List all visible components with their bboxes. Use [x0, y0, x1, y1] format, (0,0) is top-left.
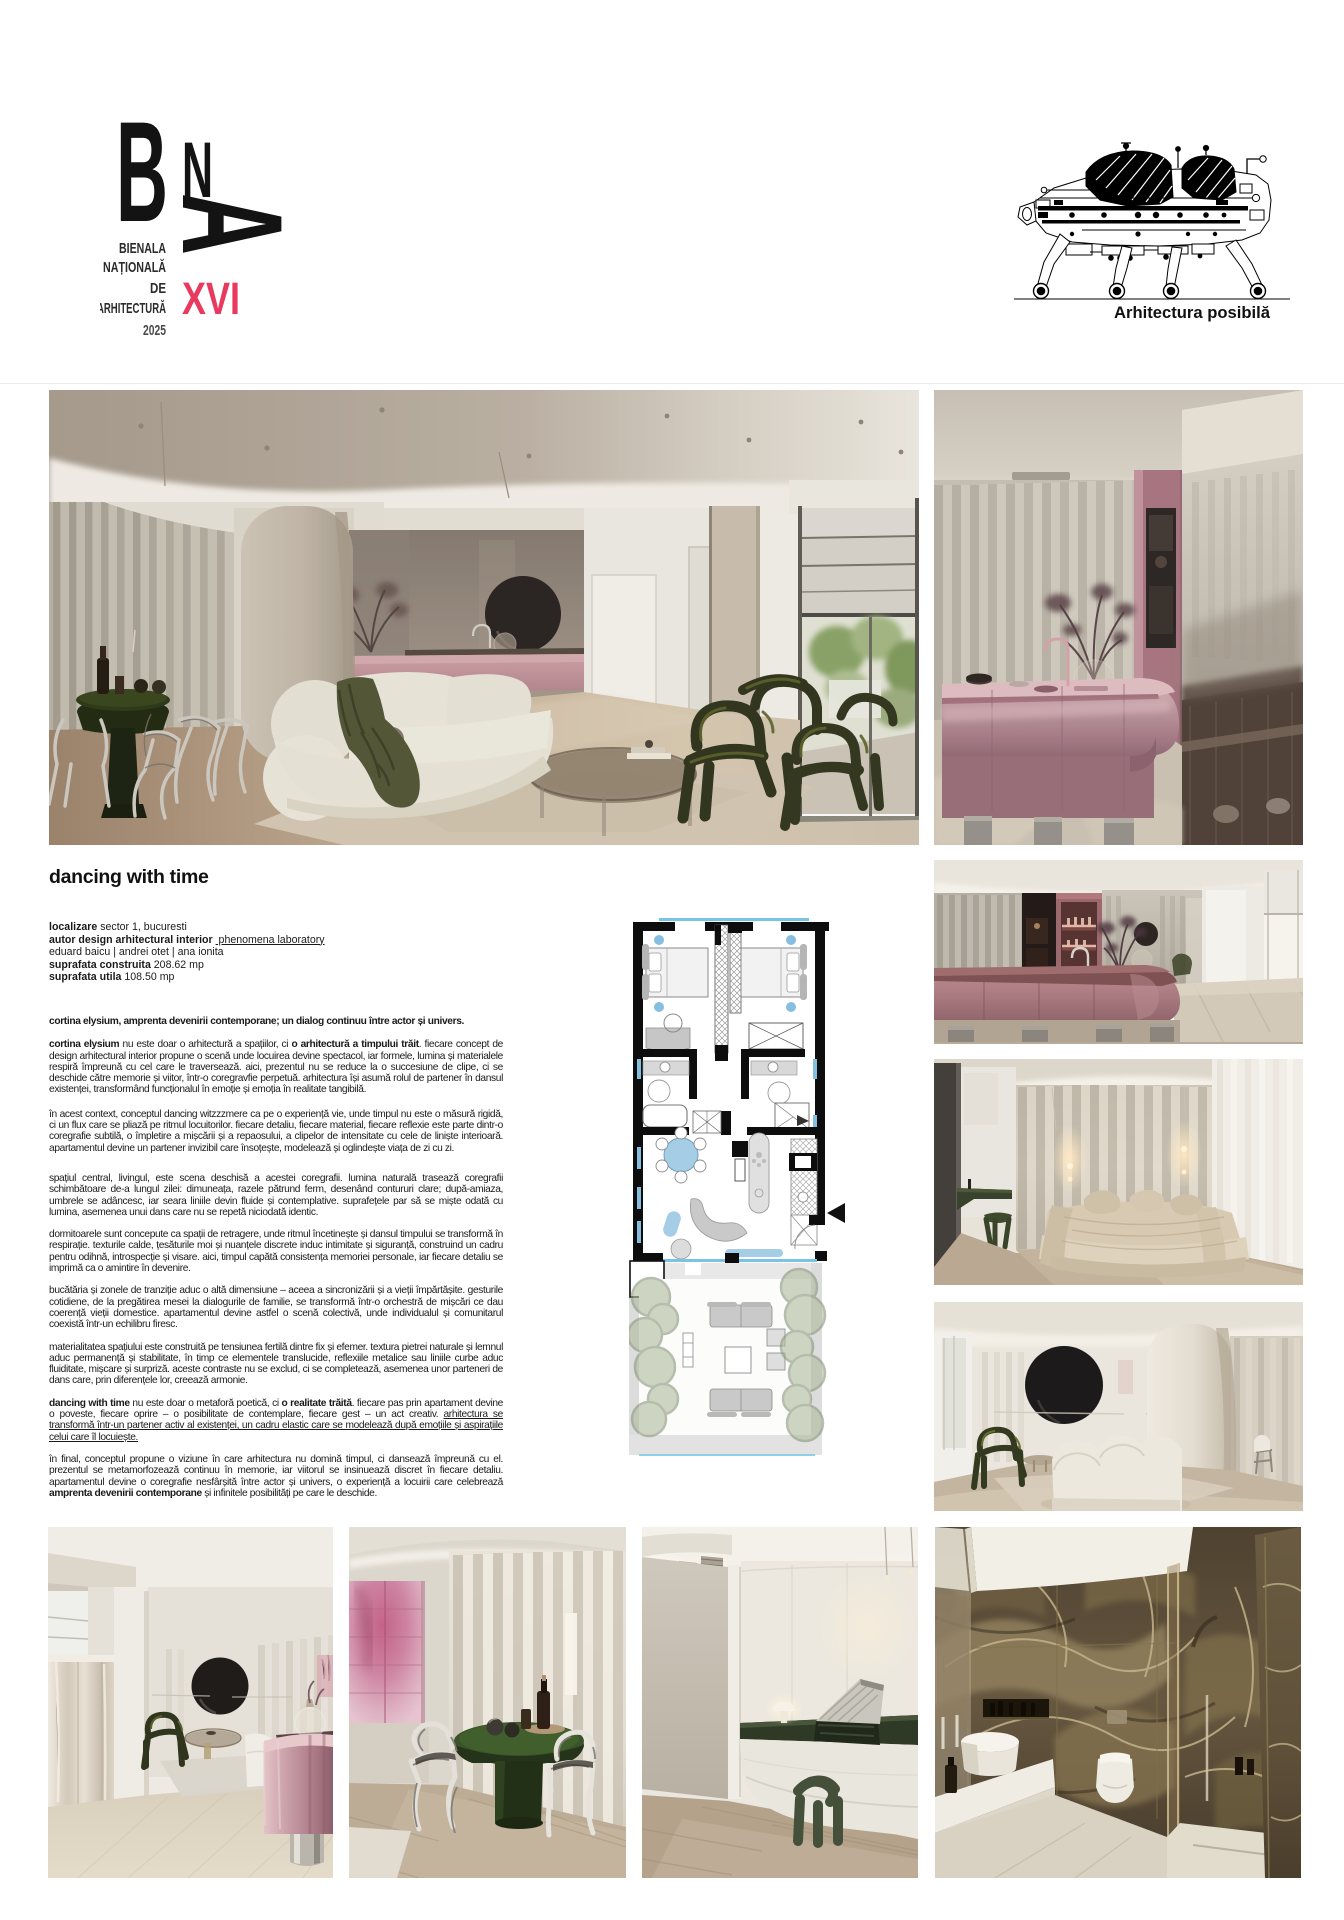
svg-text:DE: DE	[150, 281, 166, 297]
svg-text:2025: 2025	[143, 323, 166, 339]
svg-text:BIENALA: BIENALA	[119, 241, 166, 257]
svg-text:XVI: XVI	[182, 273, 240, 324]
svg-text:A: A	[152, 193, 311, 255]
svg-text:Arhitectura posibilă: Arhitectura posibilă	[1114, 304, 1271, 322]
svg-text:ARHITECTURĂ: ARHITECTURĂ	[100, 300, 166, 317]
svg-text:NAȚIONALĂ: NAȚIONALĂ	[103, 259, 166, 276]
